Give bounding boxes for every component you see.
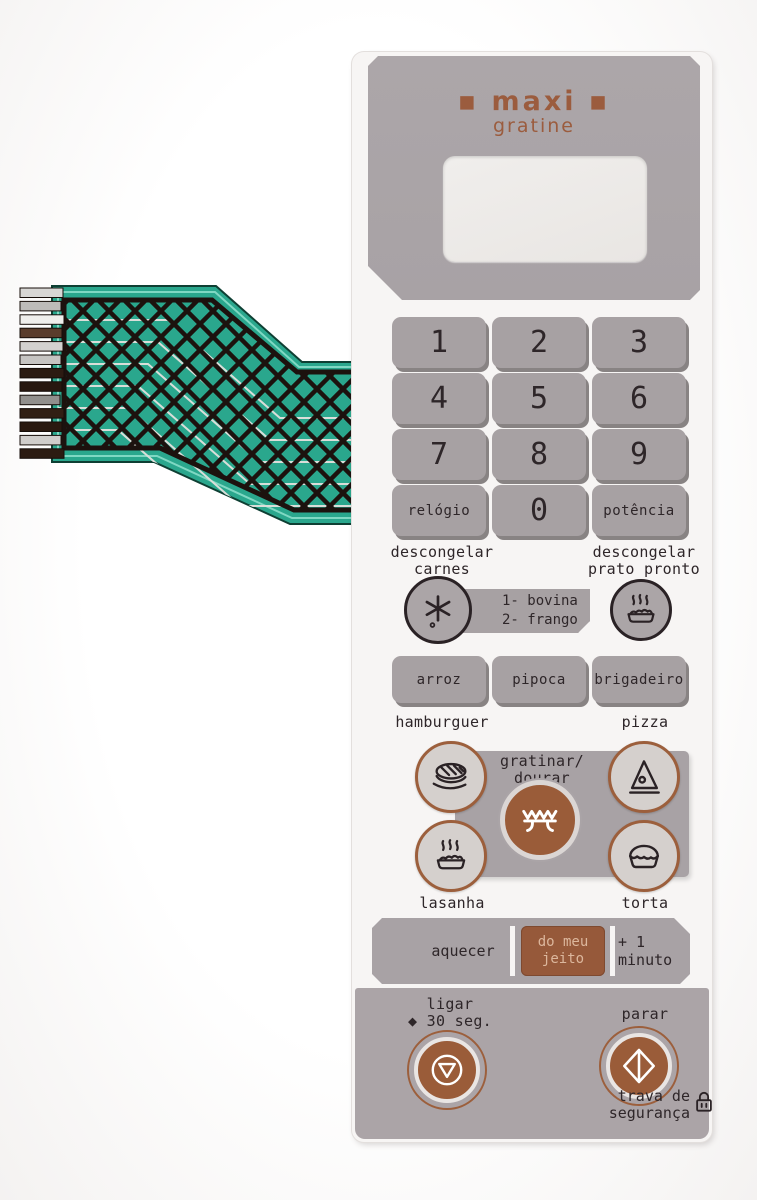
flex-cable — [18, 272, 358, 534]
key-9[interactable]: 9 — [592, 429, 686, 480]
do-meu-jeito-button[interactable]: do meu jeito — [521, 926, 605, 976]
lasanha-button[interactable] — [415, 820, 487, 892]
pie-icon — [622, 834, 666, 878]
key-8[interactable]: 8 — [492, 429, 586, 480]
pizza-label: pizza — [580, 714, 710, 731]
product-photo: ▪ maxi ▪ gratine 1 2 3 4 5 6 7 8 9 relóg… — [0, 0, 757, 1200]
key-3[interactable]: 3 — [592, 317, 686, 368]
key-potencia[interactable]: potência — [592, 485, 686, 536]
ligar-disc — [414, 1037, 480, 1103]
grill-heater-icon — [517, 797, 563, 843]
defrost-carnes-label: descongelar carnes — [372, 544, 512, 579]
hamburguer-label: hamburguer — [372, 714, 512, 731]
header-section: ▪ maxi ▪ gratine — [368, 56, 700, 300]
food-keys: arroz pipoca brigadeiro — [392, 656, 686, 707]
key-4[interactable]: 4 — [392, 373, 486, 424]
divider — [510, 926, 515, 976]
key-brigadeiro[interactable]: brigadeiro — [592, 656, 686, 703]
trava-seguranca-label: trava de segurança — [565, 1088, 690, 1123]
key-pipoca[interactable]: pipoca — [492, 656, 586, 703]
brand-subname: gratine — [368, 115, 700, 137]
snowflake-icon — [419, 591, 457, 629]
key-5[interactable]: 5 — [492, 373, 586, 424]
defrost-prato-label: descongelar prato pronto — [570, 544, 718, 579]
defrost-carnes-button[interactable] — [404, 576, 472, 644]
key-1[interactable]: 1 — [392, 317, 486, 368]
stop-icon — [617, 1044, 661, 1088]
heat-bar: aquecer do meu jeito + 1 minuto — [372, 918, 690, 984]
start-icon — [425, 1048, 469, 1092]
start-stop-zone: ligar ◆ 30 seg. parar trav — [355, 988, 709, 1139]
divider — [610, 926, 615, 976]
ligar-label: ligar ◆ 30 seg. — [385, 996, 515, 1031]
membrane-panel: ▪ maxi ▪ gratine 1 2 3 4 5 6 7 8 9 relóg… — [352, 52, 712, 1142]
keypad: 1 2 3 4 5 6 7 8 9 relógio 0 potência — [392, 317, 686, 536]
grill-button[interactable] — [500, 780, 580, 860]
key-6[interactable]: 6 — [592, 373, 686, 424]
key-arroz[interactable]: arroz — [392, 656, 486, 703]
pizza-slice-icon — [622, 755, 666, 799]
key-2[interactable]: 2 — [492, 317, 586, 368]
defrost-prato-button[interactable] — [610, 579, 672, 641]
torta-label: torta — [578, 895, 712, 912]
key-7[interactable]: 7 — [392, 429, 486, 480]
defrost-options: 1- bovina 2- frango — [458, 589, 590, 633]
hamburger-icon — [428, 754, 474, 800]
steam-dish-icon — [430, 835, 472, 877]
brand-name: ▪ maxi ▪ — [368, 86, 700, 117]
lasanha-label: lasanha — [382, 895, 522, 912]
steam-dish-icon — [621, 590, 661, 630]
pizza-button[interactable] — [608, 741, 680, 813]
display-window — [443, 156, 647, 262]
torta-button[interactable] — [608, 820, 680, 892]
lock-icon — [693, 1090, 715, 1114]
hamburguer-button[interactable] — [415, 741, 487, 813]
parar-label: parar — [595, 1006, 695, 1023]
plus-one-minute-button[interactable]: + 1 minuto — [618, 918, 708, 984]
key-relogio[interactable]: relógio — [392, 485, 486, 536]
key-0[interactable]: 0 — [492, 485, 586, 536]
ligar-button[interactable] — [407, 1030, 487, 1110]
